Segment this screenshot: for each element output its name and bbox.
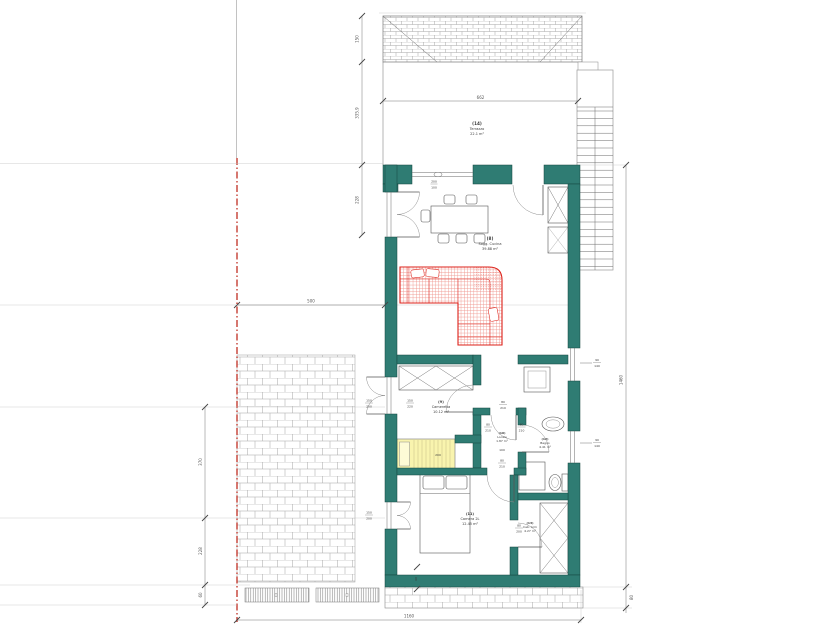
svg-text:228: 228: [198, 547, 203, 555]
svg-text:210: 210: [500, 406, 506, 410]
svg-text:4.27 m²: 4.27 m²: [524, 529, 537, 533]
svg-text:80: 80: [629, 595, 634, 601]
window-handle: [434, 172, 442, 176]
sink: [542, 417, 564, 431]
bed-pillow: [423, 476, 444, 489]
chair: [444, 195, 455, 204]
living-wardrobe: [548, 187, 568, 253]
svg-text:80: 80: [486, 423, 490, 427]
svg-text:140: 140: [594, 364, 600, 368]
roof-band: [379, 13, 586, 62]
dim-setback: 500: [234, 299, 388, 309]
svg-text:662: 662: [477, 95, 485, 100]
label-terrace-door-out: 150 200: [365, 399, 373, 409]
svg-text:150: 150: [366, 511, 372, 515]
level-note: 100: [499, 448, 505, 452]
svg-text:1460: 1460: [619, 374, 624, 385]
sofa-pillow: [411, 269, 425, 279]
roof-hatch: [383, 16, 582, 62]
cameretta-wardrobe: [399, 366, 473, 390]
floor-plan-canvas: 662 150 335.9 228 500 370 228 60 1160: [0, 0, 840, 630]
svg-text:80: 80: [500, 459, 504, 463]
property-line: [237, 0, 238, 622]
sofa-pillow: [488, 307, 499, 321]
toilet: [549, 475, 561, 491]
svg-text:22.1 m²: 22.1 m²: [470, 132, 484, 136]
svg-text:Sogg. Cucina: Sogg. Cucina: [479, 242, 502, 246]
cabina-wardrobe: [540, 503, 568, 573]
dining-table: [431, 206, 488, 233]
bed-pillow: [400, 442, 410, 466]
svg-text:100: 100: [431, 186, 437, 190]
room-label-terrazzo: (14) Terrazzo 22.1 m²: [469, 121, 485, 136]
svg-text:210: 210: [485, 429, 491, 433]
label-window-right-a: 90 140: [593, 358, 601, 368]
svg-text:150: 150: [407, 399, 413, 403]
svg-text:200: 200: [366, 517, 372, 521]
dim-left-vertical: 150 335.9 228: [355, 13, 366, 238]
svg-text:210: 210: [519, 429, 525, 433]
double-bed: [420, 473, 470, 553]
label-window-right-b: 90 140: [593, 438, 601, 448]
single-bed-yellow: [397, 439, 455, 469]
dim-garden-vertical: 370 228 60: [198, 404, 208, 608]
svg-text:140: 140: [594, 444, 600, 448]
dim-total-width: 1160: [234, 614, 584, 624]
svg-text:(11): (11): [466, 512, 474, 516]
svg-text:60: 60: [414, 577, 418, 581]
svg-text:10.12 m²: 10.12 m²: [433, 410, 450, 414]
svg-text:80: 80: [520, 423, 524, 427]
svg-text:228: 228: [355, 196, 360, 204]
svg-text:60: 60: [198, 592, 203, 598]
svg-text:80: 80: [501, 400, 505, 404]
svg-text:210: 210: [499, 465, 505, 469]
chair: [456, 234, 467, 243]
svg-text:Cameretta: Cameretta: [432, 405, 451, 409]
svg-text:90: 90: [595, 358, 599, 362]
toilet-tank: [562, 474, 568, 491]
svg-text:220: 220: [407, 405, 413, 409]
svg-text:1160: 1160: [404, 614, 415, 619]
chair: [466, 195, 477, 204]
paved-garden-terrace: [237, 355, 355, 582]
svg-text:500: 500: [307, 299, 315, 304]
bottom-walkway: [385, 587, 583, 608]
svg-text:200: 200: [516, 530, 522, 534]
bed-pillow: [446, 476, 467, 489]
svg-text:Terrazzo: Terrazzo: [469, 127, 484, 131]
svg-text:370: 370: [198, 458, 203, 466]
svg-text:4.41 m²: 4.41 m²: [539, 445, 552, 449]
svg-text:335.9: 335.9: [355, 107, 360, 119]
svg-text:12.45 m²: 12.45 m²: [462, 522, 479, 526]
garden-steps: [245, 588, 379, 602]
label-camera-door-out: 150 200: [365, 511, 373, 521]
svg-text:(14): (14): [472, 121, 482, 126]
upper-terrace: [383, 62, 598, 165]
svg-text:80: 80: [517, 524, 521, 528]
svg-text:(8): (8): [487, 236, 494, 241]
chair: [438, 234, 449, 243]
floor-plan-page: 662 150 335.9 228 500 370 228 60 1160: [0, 0, 840, 630]
dim-total-height: 1460 80: [619, 162, 635, 613]
svg-text:1.87 m²: 1.87 m²: [496, 439, 509, 443]
dim-terrace-width: 662: [380, 95, 581, 104]
bed-length-label: 200: [435, 453, 441, 457]
svg-text:200: 200: [366, 405, 372, 409]
svg-text:200: 200: [431, 180, 437, 184]
chair: [421, 210, 430, 222]
sofa-pillow: [426, 268, 440, 277]
external-stairs: [577, 70, 613, 270]
svg-text:(9): (9): [438, 400, 444, 404]
svg-text:150: 150: [366, 399, 372, 403]
svg-text:Camera 2L: Camera 2L: [460, 517, 479, 521]
svg-text:90: 90: [595, 438, 599, 442]
svg-text:150: 150: [355, 35, 360, 43]
svg-text:39.88 m²: 39.88 m²: [482, 247, 499, 251]
